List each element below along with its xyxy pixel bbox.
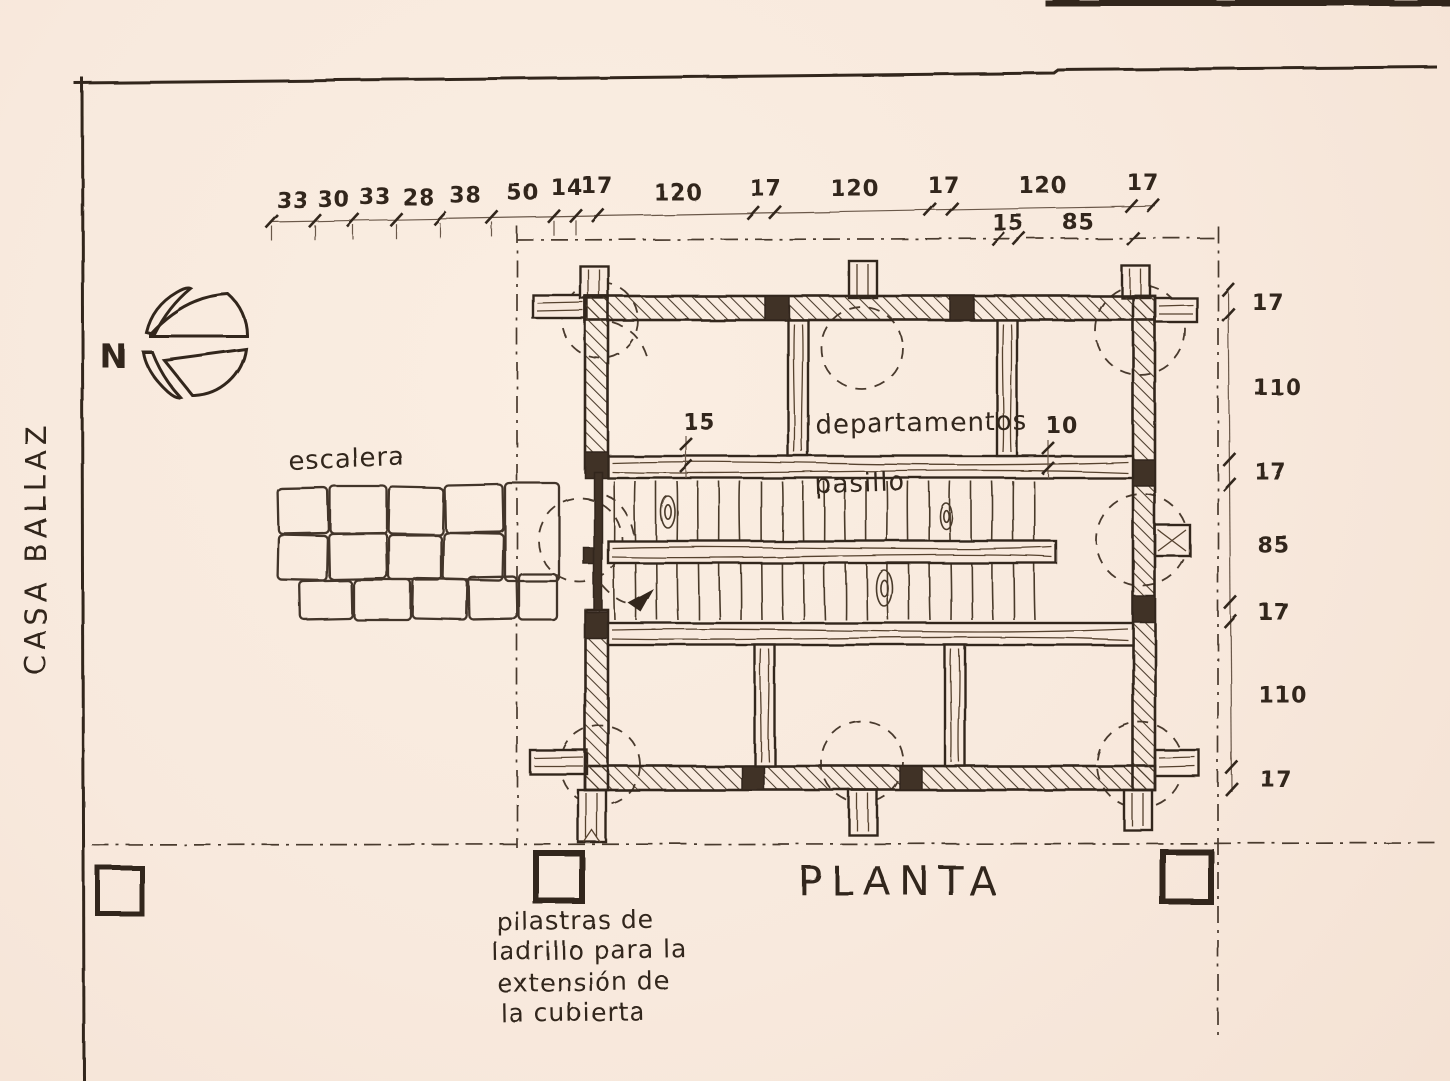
pilaster-square: [98, 868, 142, 914]
right-dimension-chain: 17 110 17 85 17 110 17: [1252, 291, 1308, 793]
project-title: CASA BALLAZ: [19, 420, 53, 676]
pilaster-note-line: la cubierta: [501, 997, 646, 1029]
pilaster-note-line: pilastras de: [496, 905, 654, 937]
pilaster-squares: [98, 852, 1211, 914]
dim-right-4: 17: [1258, 601, 1291, 626]
dimension-lines: [266, 199, 1238, 796]
pilaster-square: [536, 853, 582, 901]
dim-top-13: 17: [1127, 171, 1160, 196]
page-title: PLANTA: [798, 859, 1005, 905]
dim-right-1: 110: [1253, 376, 1302, 401]
building-plan: 15 10 departamentos pasillo: [530, 261, 1199, 842]
dim-right-3: 85: [1257, 533, 1290, 558]
dim-right-6: 17: [1260, 768, 1293, 793]
top-edge-mark: [1045, 0, 1450, 6]
dim-beam-right: 10: [1046, 414, 1079, 439]
beams: [608, 320, 1133, 766]
entry-arrow: [628, 589, 654, 612]
pilaster-square: [1163, 852, 1211, 902]
dim-sub-0: 15: [992, 211, 1025, 236]
dim-top-4: 38: [450, 184, 483, 209]
plan-drawing: N CASA BALLAZ 33 30 33 28 38 50 14 17 12…: [0, 0, 1450, 1081]
corridor-label: pasillo: [814, 467, 906, 500]
pilaster-note: pilastras de ladrillo para la extensión …: [491, 904, 689, 1028]
dim-sub-1: 85: [1062, 210, 1095, 235]
rooms-label: departamentos: [815, 406, 1028, 440]
plan-sheet: N CASA BALLAZ 33 30 33 28 38 50 14 17 12…: [0, 0, 1450, 1081]
sub-dimension-chain: 15 85: [992, 210, 1095, 236]
north-label: N: [100, 337, 128, 376]
dim-top-7: 17: [581, 174, 614, 199]
pilaster-note-line: ladrillo para la: [492, 934, 688, 966]
dim-right-0: 17: [1252, 291, 1285, 316]
dim-top-2: 33: [359, 185, 392, 210]
dim-right-5: 110: [1259, 684, 1308, 709]
pilaster-note-line: extensión de: [497, 966, 671, 998]
dim-top-11: 17: [928, 174, 961, 199]
stairs-label: escalera: [288, 442, 407, 476]
dim-top-3: 28: [403, 186, 436, 211]
dim-top-5: 50: [507, 181, 540, 206]
dim-beam-left: 15: [684, 411, 717, 436]
dim-top-6: 14: [551, 176, 584, 201]
dim-top-12: 120: [1019, 174, 1068, 199]
dim-top-8: 120: [654, 181, 703, 206]
dim-top-0: 33: [277, 189, 310, 214]
dim-top-1: 30: [318, 188, 351, 213]
dim-top-10: 120: [831, 177, 880, 202]
dim-top-9: 17: [750, 177, 783, 202]
north-compass: N: [100, 288, 247, 399]
dim-right-2: 17: [1255, 461, 1288, 486]
